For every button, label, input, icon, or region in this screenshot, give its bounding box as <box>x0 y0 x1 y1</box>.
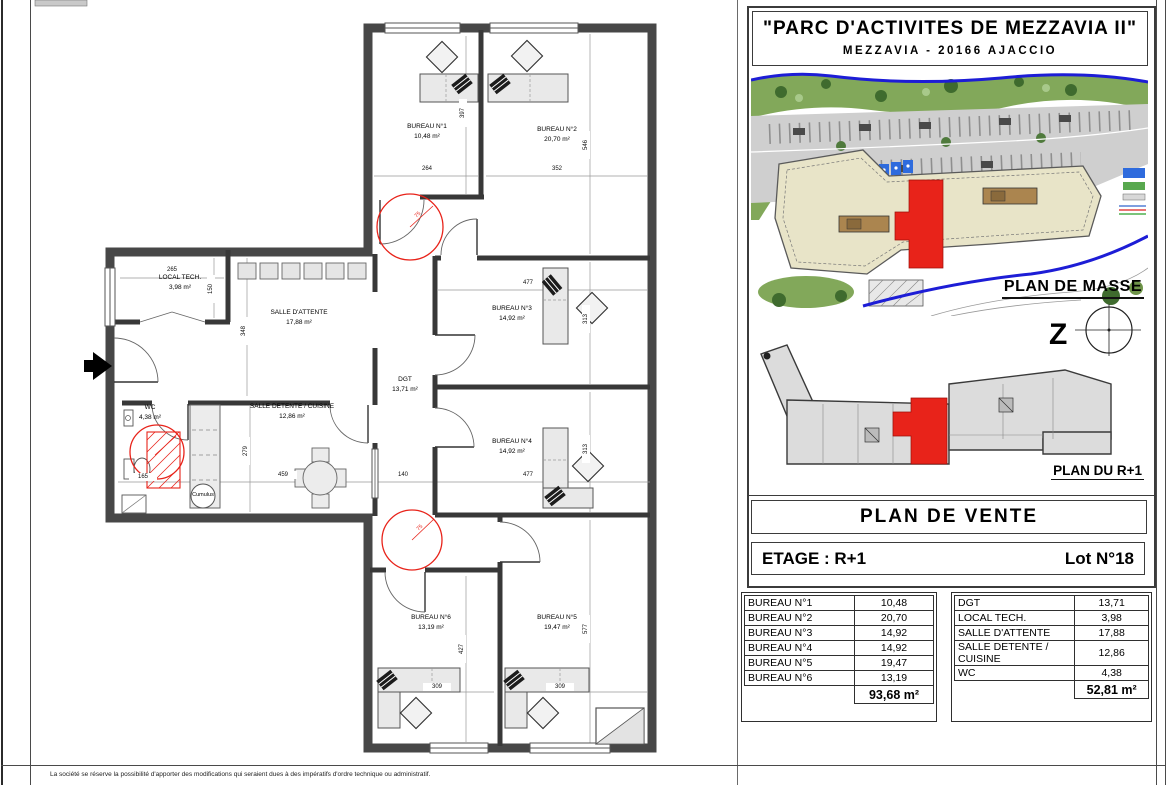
key-plan-drawing <box>753 340 1146 466</box>
table-row: DGT13,71 <box>955 596 1149 611</box>
dimension-label: 477 <box>514 279 542 287</box>
table-row: WC4,38 <box>955 666 1149 681</box>
table-total-row: 93,68 m² <box>745 686 934 704</box>
room-label: BUREAU N°613,19 m² <box>371 613 491 632</box>
room-label: DGT13,71 m² <box>345 375 465 394</box>
surfaces-table-left: BUREAU N°110,48 BUREAU N°220,70 BUREAU N… <box>741 592 937 722</box>
disclaimer-text: La société se réserve la possibilité d'a… <box>50 771 430 778</box>
dimension-label: 313 <box>582 305 590 333</box>
dimension-label: 313 <box>582 435 590 463</box>
table-row: SALLE DETENTE / CUISINE12,86 <box>955 641 1149 666</box>
plan-masse-label: PLAN DE MASSE <box>1002 278 1144 299</box>
cumulus-label: Cumulus <box>186 492 220 498</box>
dimension-label: 264 <box>413 165 441 173</box>
dimension-label: 459 <box>269 471 297 479</box>
dimension-label: 397 <box>459 99 467 127</box>
dimension-label: 165 <box>129 473 157 481</box>
room-label: WC4,38 m² <box>90 403 210 422</box>
table-row: BUREAU N°414,92 <box>745 641 934 656</box>
room-label: BUREAU N°110,48 m² <box>367 122 487 141</box>
title-block: "PARC D'ACTIVITES DE MEZZAVIA II" MEZZAV… <box>747 6 1156 588</box>
document-type: PLAN DE VENTE <box>751 500 1147 534</box>
dimension-label: 546 <box>582 131 590 159</box>
dimension-label: 150 <box>207 275 215 303</box>
table-total-row: 52,81 m² <box>955 681 1149 699</box>
room-label: BUREAU N°314,92 m² <box>452 304 572 323</box>
dimension-label: 477 <box>514 471 542 479</box>
room-label: LOCAL TECH.3,98 m² <box>120 273 240 292</box>
table-row: BUREAU N°314,92 <box>745 626 934 641</box>
table-row: SALLE D'ATTENTE17,88 <box>955 626 1149 641</box>
sheet-frame-right-inner <box>1156 0 1157 785</box>
room-label: SALLE DETENTE / CUISINE12,86 m² <box>232 402 352 421</box>
table-row: BUREAU N°110,48 <box>745 596 934 611</box>
sheet-frame-right-outer <box>1165 0 1166 785</box>
table-row: BUREAU N°220,70 <box>745 611 934 626</box>
total-surface: 52,81 m² <box>1075 681 1149 699</box>
surfaces-table-right: DGT13,71 LOCAL TECH.3,98 SALLE D'ATTENTE… <box>951 592 1152 722</box>
dimension-label: 577 <box>582 615 590 643</box>
lot-label: Lot N°18 <box>1065 549 1134 569</box>
dimension-label: 140 <box>389 471 417 479</box>
room-label: BUREAU N°519,47 m² <box>497 613 617 632</box>
project-header: "PARC D'ACTIVITES DE MEZZAVIA II" MEZZAV… <box>752 11 1148 66</box>
room-label: BUREAU N°414,92 m² <box>452 437 572 456</box>
table-row: BUREAU N°613,19 <box>745 671 934 686</box>
table-row: BUREAU N°519,47 <box>745 656 934 671</box>
dimension-label: 279 <box>242 437 250 465</box>
dimension-label: 352 <box>543 165 571 173</box>
table-row: LOCAL TECH.3,98 <box>955 611 1149 626</box>
dimension-label: 265 <box>158 266 186 274</box>
room-label: BUREAU N°220,70 m² <box>497 125 617 144</box>
dimension-label: 309 <box>546 683 574 691</box>
floor-label: ETAGE : R+1 <box>762 549 866 569</box>
drawing-sheet: { "title_block": { "project_title": "\"P… <box>0 0 1170 785</box>
room-label: SALLE D'ATTENTE17,88 m² <box>239 308 359 327</box>
floor-lot-bar: ETAGE : R+1 Lot N°18 <box>751 542 1145 575</box>
plan-r1-label: PLAN DU R+1 <box>1051 463 1144 480</box>
total-surface: 93,68 m² <box>855 686 934 704</box>
sheet-frame-divider <box>737 0 738 785</box>
project-address: MEZZAVIA - 20166 AJACCIO <box>753 45 1147 57</box>
floor-plan: BUREAU N°110,48 m² BUREAU N°220,70 m² LO… <box>0 0 737 785</box>
dimension-label: 348 <box>240 317 248 345</box>
dimension-label: 427 <box>458 635 466 663</box>
panel-separator <box>749 495 1154 496</box>
project-title: "PARC D'ACTIVITES DE MEZZAVIA II" <box>753 18 1147 40</box>
dimension-label: 309 <box>423 683 451 691</box>
